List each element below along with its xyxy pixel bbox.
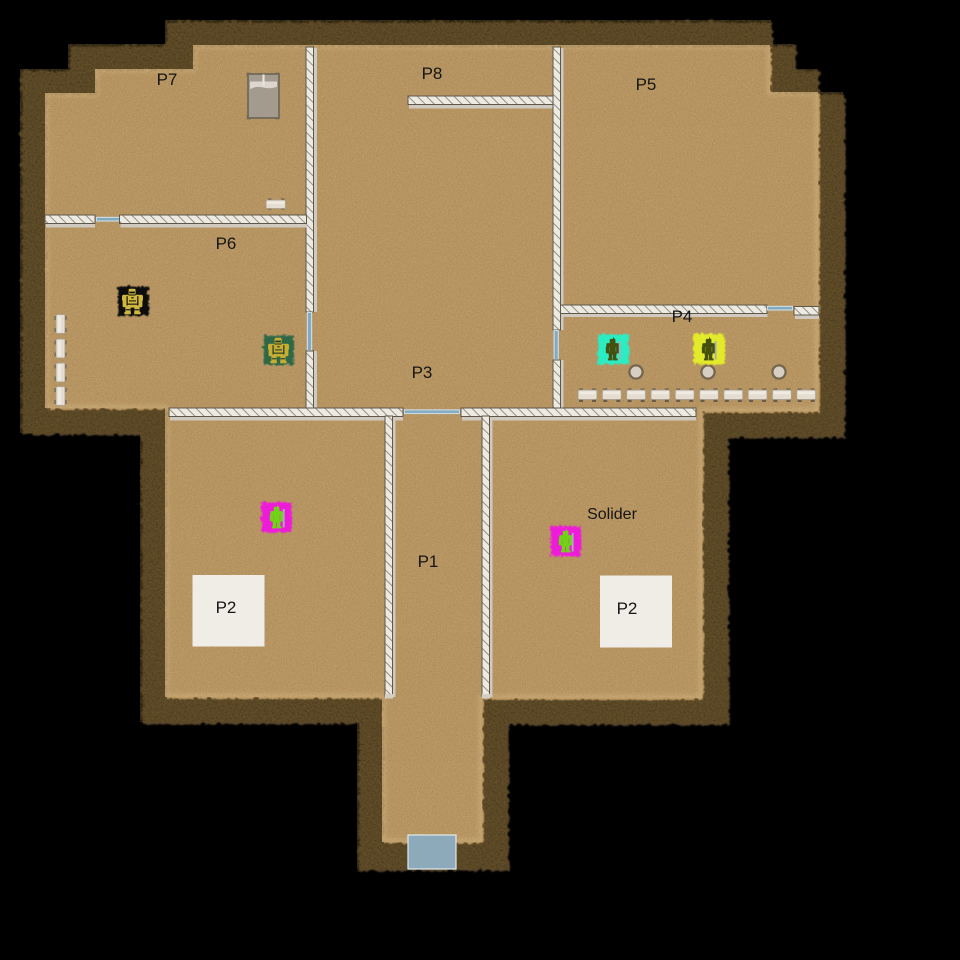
- svg-text:P8: P8: [422, 64, 443, 83]
- svg-text:Solider: Solider: [587, 506, 637, 523]
- svg-text:P1: P1: [418, 552, 439, 571]
- svg-text:P2: P2: [617, 599, 638, 618]
- svg-text:P3: P3: [412, 363, 433, 382]
- svg-text:P7: P7: [157, 70, 178, 89]
- svg-text:P5: P5: [636, 75, 657, 94]
- svg-text:P6: P6: [216, 234, 237, 253]
- svg-text:P4: P4: [672, 307, 693, 326]
- svg-text:P2: P2: [216, 598, 237, 617]
